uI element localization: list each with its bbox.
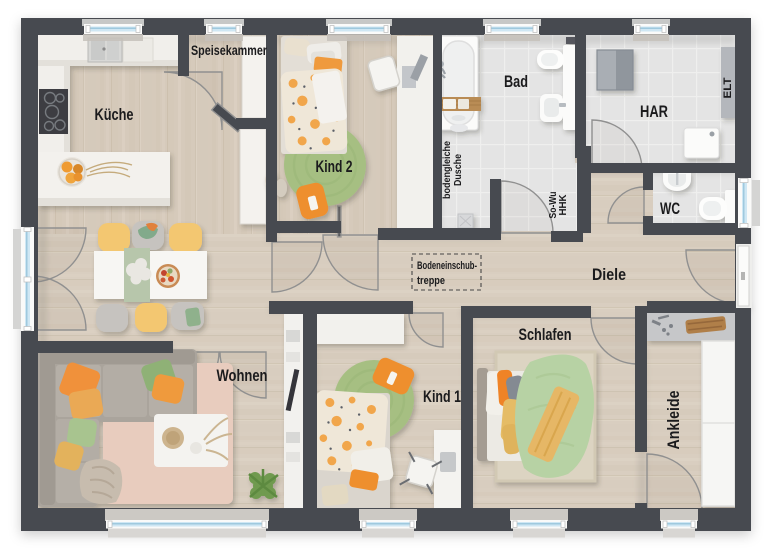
svg-text:Diele: Diele	[592, 266, 626, 284]
svg-text:Bodeneinschub-: Bodeneinschub-	[417, 260, 477, 272]
svg-text:treppe: treppe	[417, 275, 445, 287]
svg-text:Speisekammer: Speisekammer	[191, 42, 267, 58]
svg-text:Dusche: Dusche	[452, 154, 464, 186]
svg-text:Bad: Bad	[504, 73, 528, 91]
svg-text:WC: WC	[660, 200, 680, 218]
svg-text:Ankleide: Ankleide	[665, 391, 683, 450]
svg-text:ELT: ELT	[722, 77, 734, 98]
svg-text:Wohnen: Wohnen	[217, 367, 268, 385]
svg-text:Kind 2: Kind 2	[316, 158, 353, 176]
svg-text:HAR: HAR	[640, 103, 668, 121]
svg-text:Küche: Küche	[95, 106, 134, 124]
svg-text:Schlafen: Schlafen	[519, 326, 572, 344]
svg-text:Kind 1: Kind 1	[423, 388, 461, 406]
svg-text:HHK: HHK	[557, 194, 569, 215]
